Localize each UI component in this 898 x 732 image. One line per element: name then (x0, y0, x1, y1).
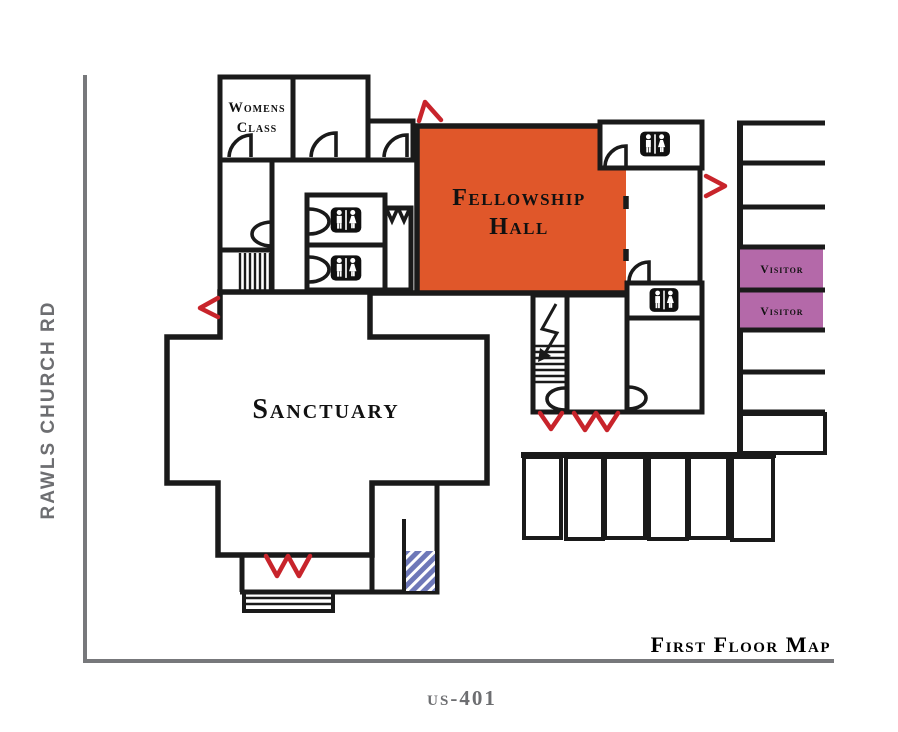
parking-right-column: Visitor Visitor (737, 121, 825, 455)
floor-plan-svg: RAWLS CHURCH RD us-401 First Floor Map S… (0, 0, 898, 732)
door-arc (605, 146, 626, 166)
womens-class-label-2: Class (237, 120, 278, 136)
exterior-door-arc (419, 102, 441, 121)
exterior-door-arc (540, 413, 562, 429)
exterior-door-arc (706, 176, 725, 196)
womens-class-label-1: Womens (228, 100, 285, 116)
exterior-door-arc (200, 298, 218, 317)
wheelchair-icon (698, 484, 721, 512)
restroom-icon (650, 288, 679, 312)
stairs-west-treads (240, 253, 270, 290)
handicap-spot (605, 457, 645, 538)
hall-south-exit (567, 295, 627, 412)
road-line-south (83, 659, 834, 663)
closet-bifold-doors (387, 210, 409, 221)
door-arc (384, 135, 407, 157)
classroom-nw (293, 77, 368, 160)
wheelchair-icon (615, 484, 638, 512)
wheelchair-icon (758, 420, 786, 443)
exterior-door-arc (266, 556, 310, 576)
visitor-spot-label: Visitor (760, 264, 803, 276)
parking-bottom-row (521, 455, 776, 540)
restroom-icon (331, 207, 362, 232)
door-arc (628, 387, 646, 409)
room-southeast (627, 318, 702, 412)
stair-direction-arrow (542, 304, 557, 355)
restroom-icon (640, 132, 670, 157)
first-floor-map: RAWLS CHURCH RD us-401 First Floor Map S… (0, 0, 898, 732)
road-label-west: RAWLS CHURCH RD (38, 301, 59, 520)
door-arc (252, 222, 272, 246)
fellowship-hall-label-1: Fellowship (452, 185, 586, 211)
ramp-slope-hatch (406, 551, 435, 591)
visitor-spot-label: Visitor (760, 306, 803, 318)
road-line-west (83, 75, 87, 661)
stairwell-east-treads (535, 346, 565, 382)
office-room-west (220, 160, 272, 250)
map-title: First Floor Map (651, 632, 831, 657)
vestibule-walls (240, 555, 406, 592)
door-arc (229, 135, 251, 157)
entry-steps-lines (246, 598, 331, 604)
exterior-door-arc (574, 413, 618, 430)
access-aisle-hatch (566, 457, 603, 539)
road-label-south: us-401 (427, 686, 497, 710)
access-aisle-hatch (732, 457, 773, 540)
handicap-spot-side (740, 414, 825, 453)
entry-steps (244, 592, 333, 611)
door-arc (309, 209, 329, 234)
wheelchair-icon (532, 484, 555, 512)
handicap-spot (524, 457, 561, 538)
door-arc (547, 388, 565, 410)
access-aisle-hatch (649, 457, 687, 539)
sanctuary-label: Sanctuary (252, 394, 399, 425)
fellowship-hall-label-2: Hall (489, 214, 549, 240)
stair-arrow-head (538, 348, 551, 362)
door-arc (311, 133, 336, 157)
handicap-spot (689, 457, 728, 538)
restroom-icon (331, 255, 362, 280)
closet (385, 208, 411, 290)
door-arc (309, 257, 329, 282)
door-arc (629, 262, 649, 281)
